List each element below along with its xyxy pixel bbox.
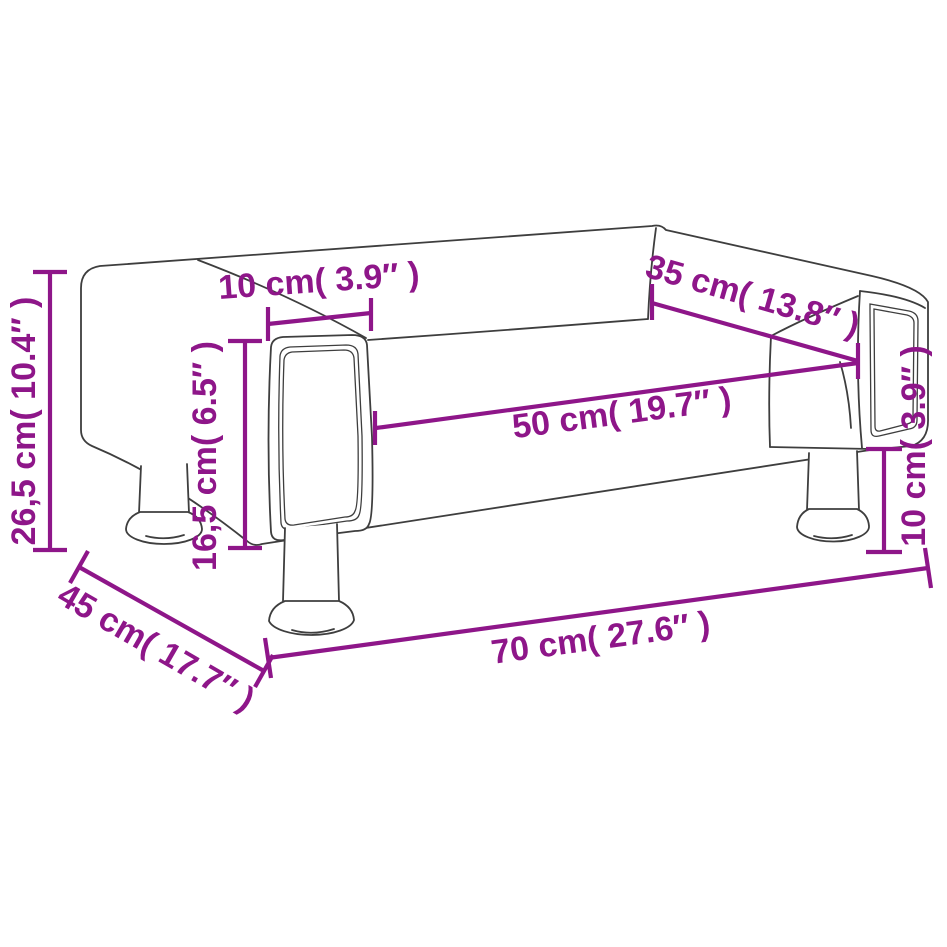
leg-front-right-base	[797, 509, 869, 542]
leg-front-left-base	[269, 601, 354, 635]
dimension-cap	[925, 548, 931, 588]
label-total-depth: 45 cm( 17.7″ )	[51, 576, 261, 719]
label-seat-height: 16,5 cm( 6.5″ )	[186, 341, 224, 571]
sofa-dimension-diagram: 26,5 cm( 10.4″ ) 10 cm( 3.9″ ) 16,5 cm( …	[0, 0, 947, 947]
dim-total-width	[265, 548, 931, 678]
leg-front-right	[797, 451, 869, 542]
label-total-height: 26,5 cm( 10.4″ )	[5, 297, 43, 546]
label-leg-height: 10 cm( 3.9″ )	[895, 345, 933, 547]
diagram-stage: 26,5 cm( 10.4″ ) 10 cm( 3.9″ ) 16,5 cm( …	[0, 0, 947, 947]
